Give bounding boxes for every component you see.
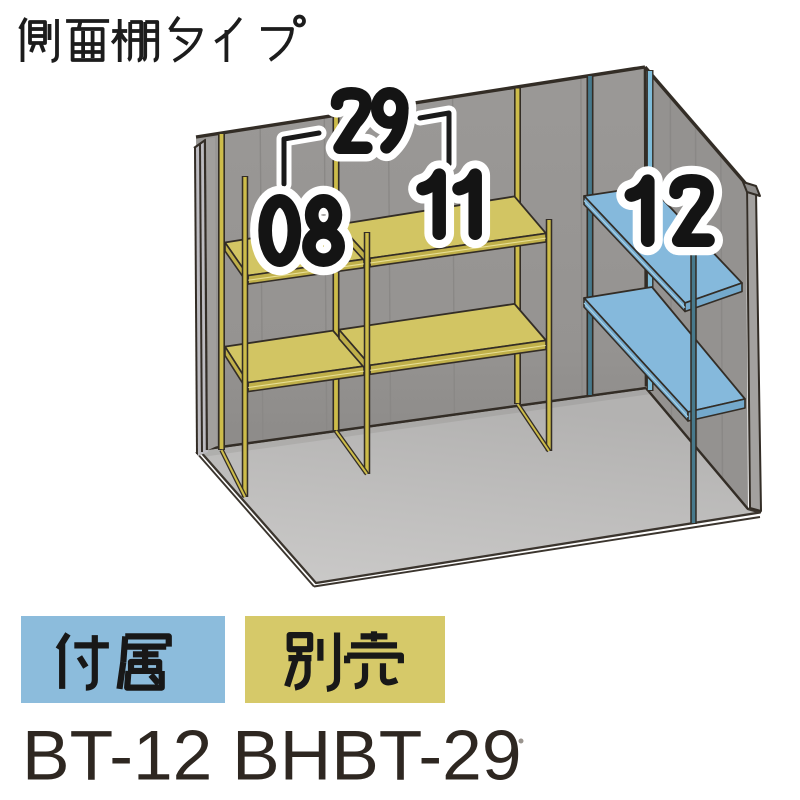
svg-text:BT-12 BHBT-29: BT-12 BHBT-29	[22, 717, 522, 796]
